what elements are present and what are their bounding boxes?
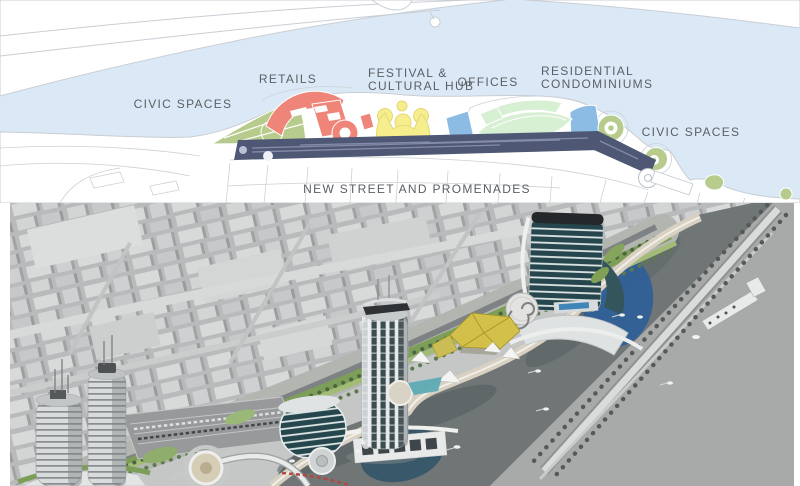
right-tower-body	[528, 216, 603, 312]
label-civic-spaces-right: CIVIC SPACES	[642, 125, 741, 139]
label-residential-line2: CONDOMINIUMS	[541, 77, 653, 91]
label-new-street: NEW STREET AND PROMENADES	[303, 182, 531, 196]
label-residential-line1: RESIDENTIAL	[541, 64, 634, 78]
street-plaza-circle	[263, 151, 273, 161]
masterplan-board: CIVIC SPACES RETAILS FESTIVAL & CULTURAL…	[0, 0, 800, 486]
label-retails: RETAILS	[259, 72, 317, 86]
label-offices: OFFICES	[457, 75, 518, 89]
label-civic-spaces-left: CIVIC SPACES	[134, 97, 233, 111]
label-festival-line1: FESTIVAL &	[368, 66, 448, 80]
aerial-render	[10, 203, 794, 486]
site-plan-diagram: CIVIC SPACES RETAILS FESTIVAL & CULTURAL…	[0, 0, 800, 203]
